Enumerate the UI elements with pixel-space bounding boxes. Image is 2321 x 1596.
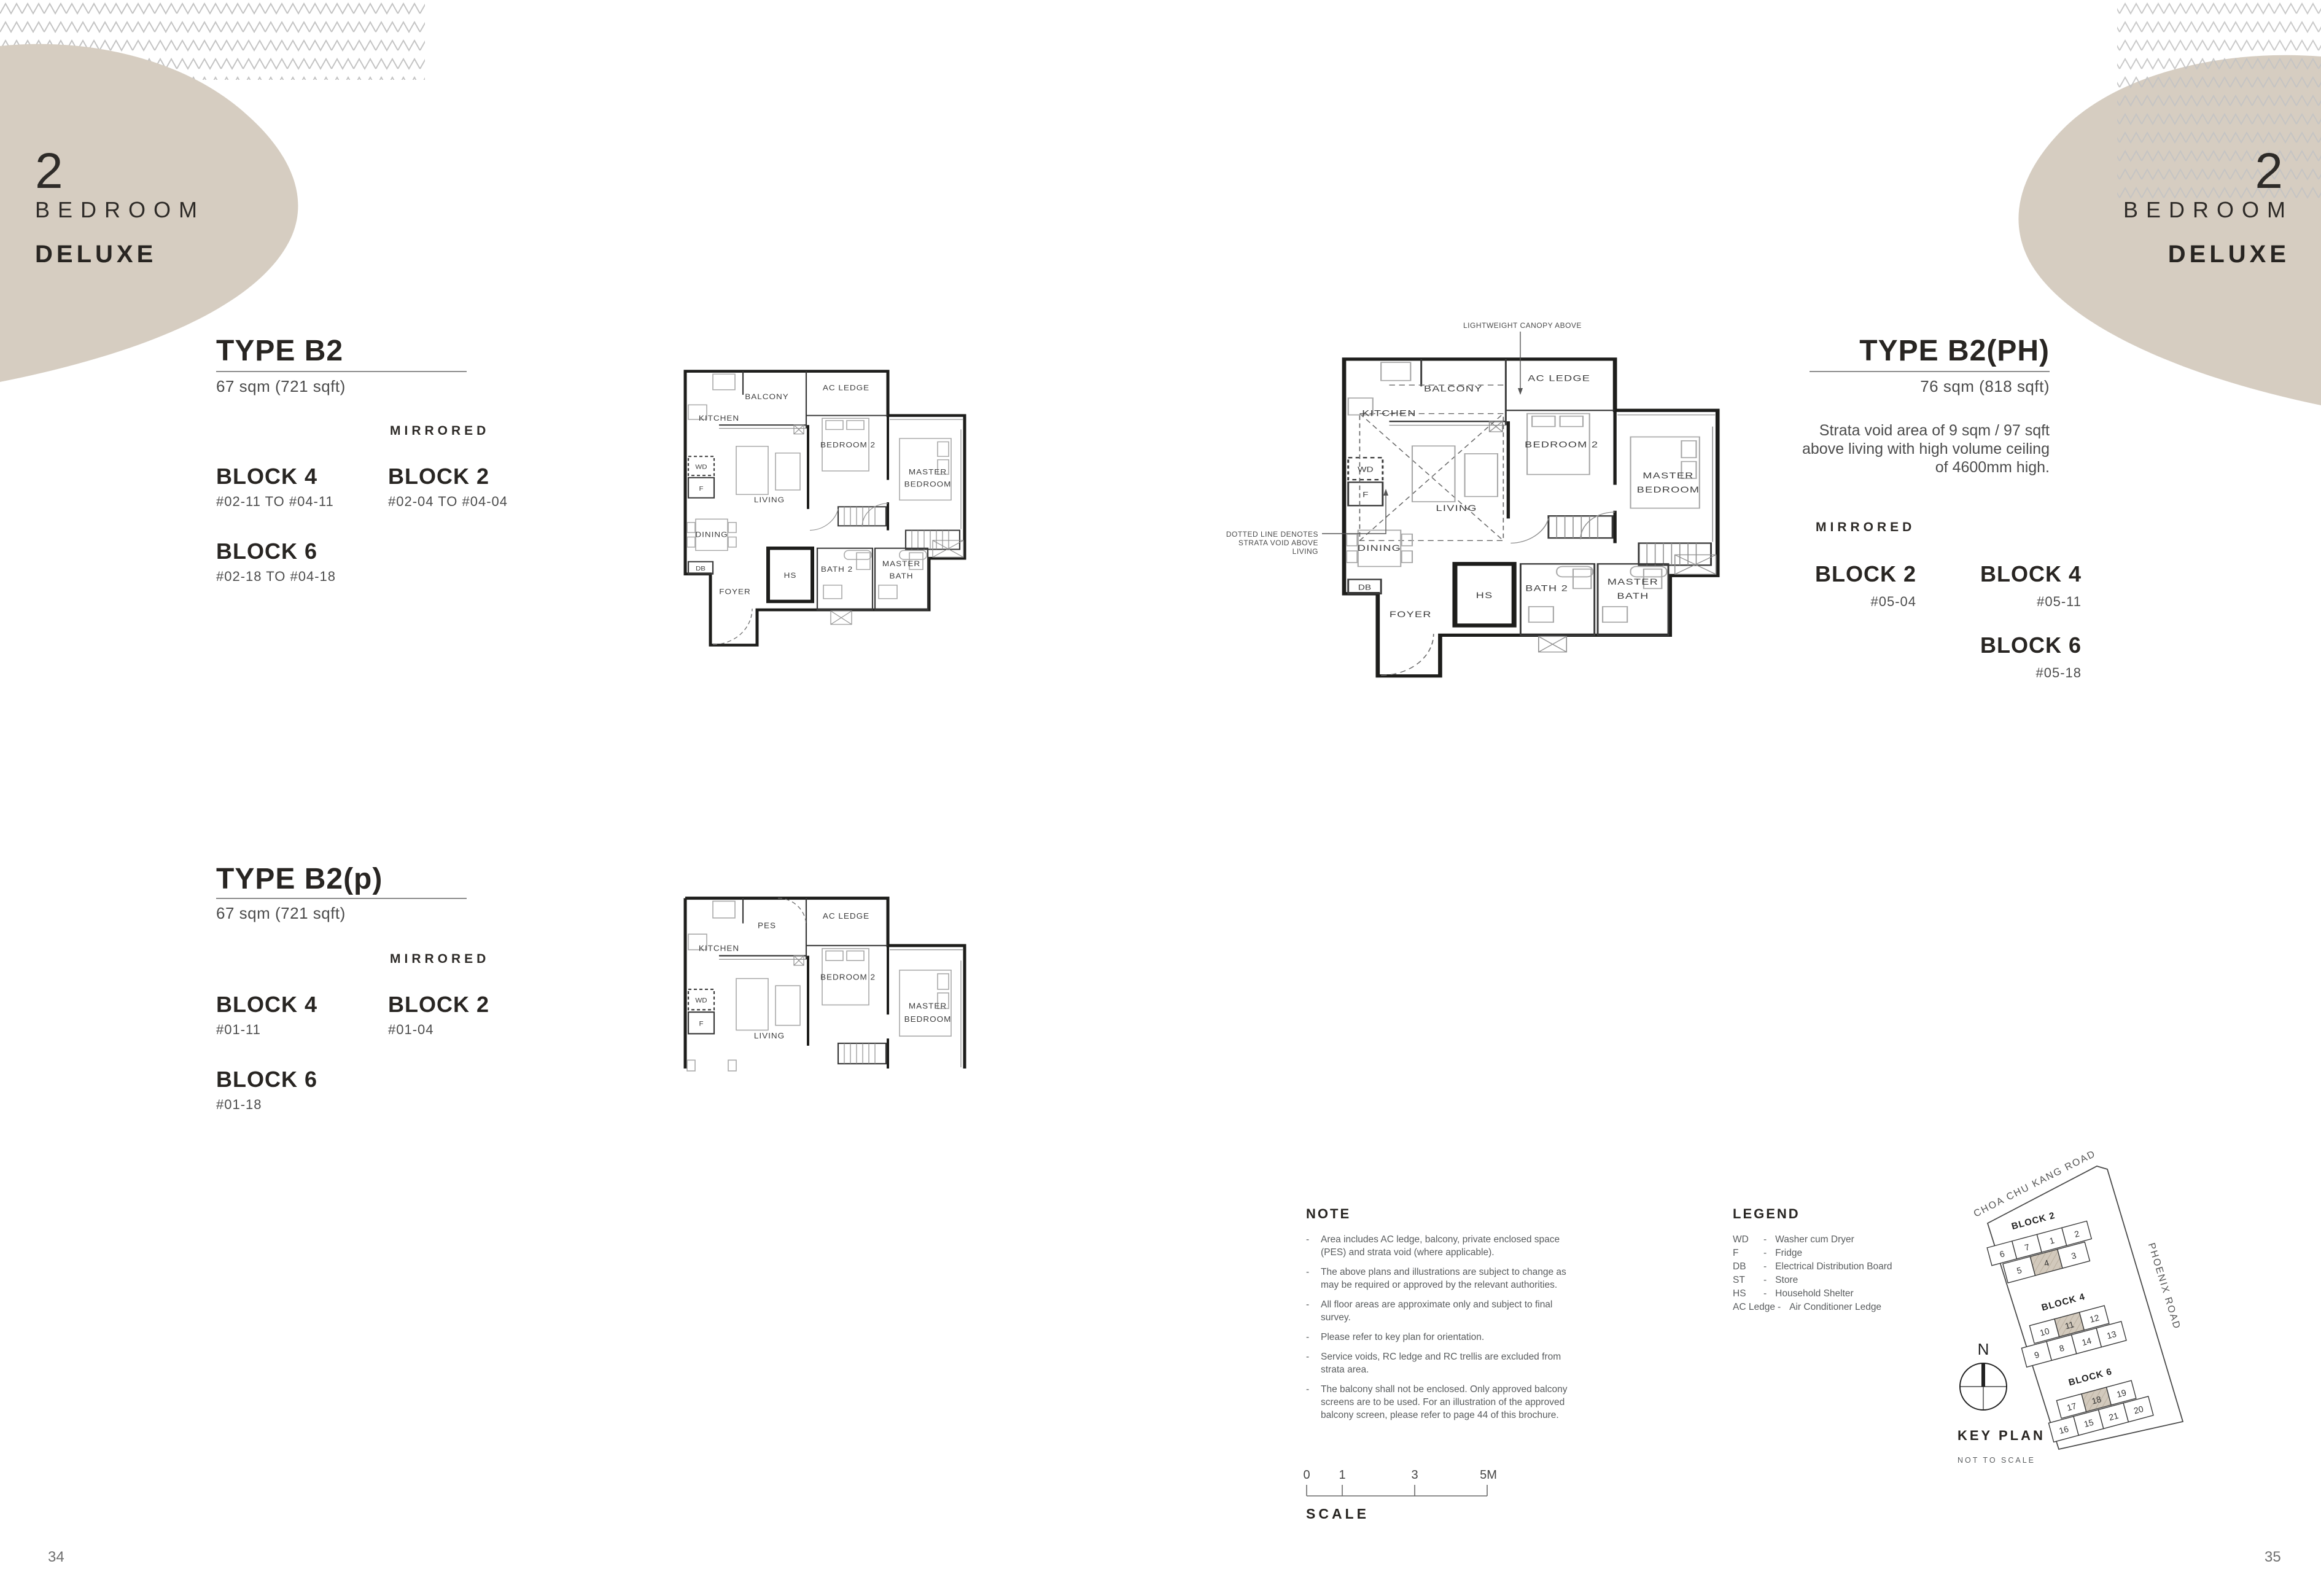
corner-right-line2: DELUXE	[2168, 242, 2290, 267]
scale-tick-0: 0	[1303, 1468, 1310, 1482]
legend-row: AC Ledge-Air Conditioner Ledge	[1733, 1301, 1892, 1314]
strata-line-2: above living with high volume ceiling	[1743, 440, 2050, 458]
type-b2ph-strata-note: Strata void area of 9 sqm / 97 sqft abov…	[1743, 421, 2050, 477]
scale-tick-5m: 5M	[1480, 1468, 1497, 1482]
legend-section: LEGEND WD-Washer cum Dryer F-Fridge DB-E…	[1733, 1207, 1892, 1314]
scale-heading: SCALE	[1306, 1506, 1369, 1522]
keyplan-heading: KEY PLAN	[1957, 1428, 2045, 1443]
type-b2-block2: BLOCK 2	[388, 465, 489, 488]
type-b2-block6-units: #02-18 TO #04-18	[216, 570, 336, 583]
type-b2-block4: BLOCK 4	[216, 465, 317, 488]
type-b2-block2-units: #02-04 TO #04-04	[388, 495, 508, 508]
floorplan-b2ph-annotations: LIGHTWEIGHT CANOPY ABOVE DOTTED LINE DEN…	[1240, 306, 1529, 570]
type-b2-block6: BLOCK 6	[216, 540, 317, 562]
legend-dash: -	[1761, 1260, 1775, 1274]
floorplan-b2p-walls	[688, 898, 963, 1069]
room-foyer: FOYER	[1390, 610, 1432, 620]
note-bullet: -	[1306, 1350, 1312, 1376]
legend-dash: -	[1761, 1274, 1775, 1287]
room-wd: WD	[695, 997, 707, 1005]
north-compass: N	[1960, 1340, 2007, 1410]
room-ac-ledge: AC LEDGE	[1528, 373, 1590, 383]
room-f: F	[699, 485, 703, 492]
room-ac-ledge: AC LEDGE	[823, 911, 869, 921]
scale-tick-1: 1	[1339, 1468, 1345, 1482]
corner-left-number: 2	[35, 146, 63, 197]
legend-row: HS-Household Shelter	[1733, 1287, 1892, 1301]
type-b2p-block2-units: #01-04	[388, 1023, 434, 1037]
room-mbath-2: BATH	[890, 572, 914, 580]
room-living: LIVING	[754, 496, 785, 504]
legend-label: Washer cum Dryer	[1775, 1233, 1854, 1247]
type-b2ph-block6-units: #05-18	[1980, 666, 2082, 680]
room-master-1: MASTER	[909, 1001, 947, 1010]
note-item: -Service voids, RC ledge and RC trellis …	[1306, 1350, 1579, 1376]
legend-dash: -	[1775, 1301, 1789, 1314]
note-list: -Area includes AC ledge, balcony, privat…	[1306, 1233, 1579, 1422]
type-b2ph-block2: BLOCK 2 #05-04	[1815, 563, 1916, 609]
legend-heading: LEGEND	[1733, 1207, 1892, 1221]
note-text: Please refer to key plan for orientation…	[1321, 1331, 1484, 1344]
note-item: -Area includes AC ledge, balcony, privat…	[1306, 1233, 1579, 1259]
north-label: N	[1978, 1340, 1989, 1358]
floorplan-b2: KITCHEN BALCONY AC LEDGE BEDROOM 2 MASTE…	[683, 362, 984, 668]
room-db: DB	[696, 566, 706, 572]
note-section: NOTE -Area includes AC ledge, balcony, p…	[1306, 1207, 1579, 1428]
room-bedroom2: BEDROOM 2	[820, 973, 876, 982]
note-bullet: -	[1306, 1383, 1312, 1422]
type-b2ph-rule	[1810, 371, 2050, 372]
legend-label: Fridge	[1775, 1247, 1802, 1260]
type-b2p-block2: BLOCK 2	[388, 994, 489, 1016]
floorplan-b2-walls	[688, 372, 963, 645]
legend-abbr: F	[1733, 1247, 1761, 1260]
room-master-2: BEDROOM	[1637, 485, 1700, 495]
note-heading: NOTE	[1306, 1207, 1579, 1221]
type-b2p-block6: BLOCK 6	[216, 1069, 317, 1091]
legend-abbr: DB	[1733, 1260, 1761, 1274]
legend-dash: -	[1761, 1247, 1775, 1260]
type-b2ph-block4-name: BLOCK 4	[1980, 563, 2082, 585]
type-b2-rule	[216, 371, 467, 372]
scale-bar-line	[1307, 1485, 1487, 1496]
scale-tick-3: 3	[1411, 1468, 1418, 1482]
type-b2ph-block2-name: BLOCK 2	[1815, 563, 1916, 585]
room-hs: HS	[1476, 591, 1493, 601]
brochure-page: 2 BEDROOM DELUXE 2 BEDROOM DELUXE TYPE B…	[0, 0, 2321, 1596]
type-b2p-mirrored: MIRRORED	[390, 952, 489, 965]
type-b2p-block6-units: #01-18	[216, 1098, 262, 1111]
canopy-arrow	[1518, 388, 1523, 395]
room-master-2: BEDROOM	[904, 1014, 952, 1024]
legend-row: DB-Electrical Distribution Board	[1733, 1260, 1892, 1274]
floorplan-b2p-furniture	[687, 901, 951, 1071]
keyplan-block4-cluster: BLOCK 4 10 11 12 9 8 14 13	[2012, 1284, 2126, 1367]
note-text: Area includes AC ledge, balcony, private…	[1321, 1233, 1579, 1259]
room-mbath-1: MASTER	[1608, 577, 1658, 587]
type-b2p-title: TYPE B2(p)	[216, 865, 383, 894]
note-item: -The above plans and illustrations are s…	[1306, 1266, 1579, 1291]
type-b2-title: TYPE B2	[216, 337, 343, 366]
corner-left-line1: BEDROOM	[35, 199, 205, 221]
note-item: -Please refer to key plan for orientatio…	[1306, 1331, 1579, 1344]
keyplan-block6-label: BLOCK 6	[2067, 1366, 2113, 1388]
annotation-strata-2: STRATA VOID ABOVE	[1238, 539, 1318, 547]
note-text: All floor areas are approximate only and…	[1321, 1298, 1579, 1324]
room-wd: WD	[695, 464, 707, 470]
strata-line-3: of 4600mm high.	[1743, 458, 2050, 477]
corner-left-line2: DELUXE	[35, 242, 157, 267]
type-b2ph-block4-units: #05-11	[1980, 595, 2082, 609]
keyplan-block6-cluster: BLOCK 6 17 18 19 16 15 21 20	[2039, 1359, 2153, 1442]
keyplan-block2-cluster: BLOCK 2 6 7 1 2 5 4 3	[1982, 1203, 2097, 1286]
type-b2ph-title: TYPE B2(PH)	[1743, 337, 2050, 366]
road-choa-chu-kang: CHOA CHU KANG ROAD	[1972, 1148, 2098, 1219]
room-pes: PES	[758, 921, 776, 930]
note-text: The above plans and illustrations are su…	[1321, 1266, 1579, 1291]
room-kitchen: KITCHEN	[699, 413, 739, 422]
room-balcony: BALCONY	[745, 392, 788, 401]
legend-abbr: WD	[1733, 1233, 1761, 1247]
legend-label: Air Conditioner Ledge	[1789, 1301, 1881, 1314]
type-b2p-block4: BLOCK 4	[216, 994, 317, 1016]
type-b2p-area: 67 sqm (721 sqft)	[216, 904, 346, 923]
annotation-canopy: LIGHTWEIGHT CANOPY ABOVE	[1463, 321, 1582, 330]
type-b2ph-block2-units: #05-04	[1815, 595, 1916, 609]
legend-list: WD-Washer cum Dryer F-Fridge DB-Electric…	[1733, 1233, 1892, 1314]
note-item: -All floor areas are approximate only an…	[1306, 1298, 1579, 1324]
scale-bar: 0 1 3 5M	[1302, 1468, 1510, 1505]
keyplan-subheading: NOT TO SCALE	[1957, 1456, 2035, 1465]
strata-line-1: Strata void area of 9 sqm / 97 sqft	[1743, 421, 2050, 440]
room-ac-ledge: AC LEDGE	[823, 383, 869, 392]
type-b2ph-mirrored: MIRRORED	[1816, 521, 1915, 534]
type-b2p-rule	[216, 898, 467, 899]
room-dining: DINING	[695, 530, 728, 539]
note-item: -The balcony shall not be enclosed. Only…	[1306, 1383, 1579, 1422]
note-bullet: -	[1306, 1298, 1312, 1324]
room-db: DB	[1358, 583, 1371, 591]
type-b2ph-block6-name: BLOCK 6	[1980, 634, 2082, 656]
keyplan-block4-label: BLOCK 4	[2040, 1291, 2086, 1313]
type-b2-block4-units: #02-11 TO #04-11	[216, 495, 334, 508]
legend-label: Household Shelter	[1775, 1287, 1854, 1301]
room-master-1: MASTER	[1643, 471, 1693, 481]
room-hs: HS	[784, 571, 797, 580]
page-number-left: 34	[48, 1549, 64, 1566]
type-b2-mirrored: MIRRORED	[390, 424, 489, 437]
room-living: LIVING	[754, 1031, 785, 1040]
type-b2ph-block4: BLOCK 4 #05-11	[1980, 563, 2082, 609]
room-master-2: BEDROOM	[904, 480, 952, 488]
note-text: The balcony shall not be enclosed. Only …	[1321, 1383, 1579, 1422]
legend-label: Electrical Distribution Board	[1775, 1260, 1892, 1274]
note-bullet: -	[1306, 1233, 1312, 1259]
legend-abbr: HS	[1733, 1287, 1761, 1301]
room-foyer: FOYER	[719, 587, 750, 596]
room-mbath-2: BATH	[1617, 591, 1649, 601]
legend-abbr: ST	[1733, 1274, 1761, 1287]
legend-row: ST-Store	[1733, 1274, 1892, 1287]
chevron-pattern-right	[2117, 0, 2321, 204]
floorplan-b2p-labels: KITCHEN PES AC LEDGE BEDROOM 2 MASTER BE…	[695, 911, 951, 1040]
type-b2ph-block6: BLOCK 6 #05-18	[1980, 634, 2082, 680]
legend-dash: -	[1761, 1233, 1775, 1247]
type-b2p-block4-units: #01-11	[216, 1023, 261, 1037]
room-kitchen: KITCHEN	[699, 944, 739, 953]
corner-right-line1: BEDROOM	[2123, 199, 2293, 221]
floorplan-b2p: KITCHEN PES AC LEDGE BEDROOM 2 MASTER BE…	[683, 889, 984, 1069]
strata-leader-line	[1322, 492, 1386, 534]
room-bath2: BATH 2	[1525, 583, 1568, 593]
corner-right-number: 2	[2255, 146, 2283, 197]
room-bath2: BATH 2	[821, 565, 853, 574]
legend-row: F-Fridge	[1733, 1247, 1892, 1260]
annotation-strata-3: LIVING	[1293, 547, 1318, 556]
keyplan-block2-label: BLOCK 2	[2010, 1210, 2056, 1232]
page-number-right: 35	[2265, 1549, 2281, 1566]
strata-arrow	[1383, 489, 1388, 496]
legend-abbr: AC Ledge	[1733, 1301, 1775, 1314]
pes-gate-arc	[778, 898, 806, 926]
type-b2ph-area: 76 sqm (818 sqft)	[1743, 377, 2050, 396]
room-bedroom2: BEDROOM 2	[820, 440, 876, 449]
legend-dash: -	[1761, 1287, 1775, 1301]
room-bedroom2: BEDROOM 2	[1525, 440, 1598, 450]
annotation-strata-1: DOTTED LINE DENOTES	[1226, 530, 1318, 539]
key-plan: CHOA CHU KANG ROAD PHOENIX ROAD BLOCK 2 …	[1953, 1161, 2321, 1590]
room-mbath-1: MASTER	[882, 559, 920, 568]
note-bullet: -	[1306, 1331, 1312, 1344]
legend-row: WD-Washer cum Dryer	[1733, 1233, 1892, 1247]
note-text: Service voids, RC ledge and RC trellis a…	[1321, 1350, 1579, 1376]
legend-label: Store	[1775, 1274, 1798, 1287]
room-master-1: MASTER	[909, 467, 947, 476]
type-b2-area: 67 sqm (721 sqft)	[216, 377, 346, 396]
room-f: F	[699, 1021, 703, 1028]
note-bullet: -	[1306, 1266, 1312, 1291]
